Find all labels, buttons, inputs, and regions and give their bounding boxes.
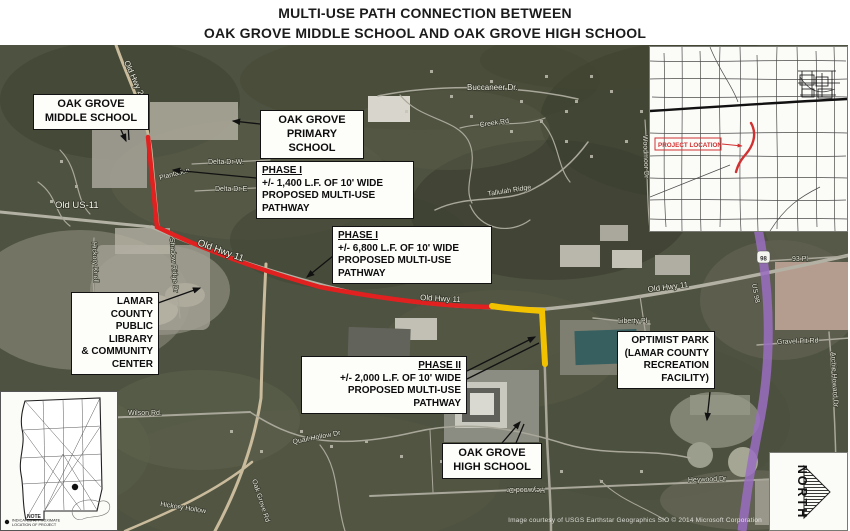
street-label: Delta Dr E — [215, 186, 248, 193]
callout-text: PUBLIC LIBRARY — [77, 321, 153, 346]
title-block: MULTI-USE PATH CONNECTION BETWEEN OAK GR… — [0, 3, 850, 44]
callout-text: OAK GROVE — [266, 114, 358, 128]
callout-text: PROPOSED MULTI-USE PATHWAY — [338, 255, 486, 280]
callout-primary-school: OAK GROVE PRIMARY SCHOOL — [260, 110, 364, 159]
callout-text: +/- 2,000 L.F. OF 10' WIDE — [307, 373, 461, 386]
mississippi-outline — [20, 398, 102, 520]
title-line1: MULTI-USE PATH CONNECTION BETWEEN — [0, 3, 850, 23]
callout-text: OPTIMIST PARK — [623, 335, 709, 348]
street-label: Heywood Dr — [688, 476, 727, 484]
map-sheet: MULTI-USE PATH CONNECTION BETWEEN OAK GR… — [0, 0, 850, 531]
callout-text: +/- 6,800 L.F. OF 10' WIDE — [338, 243, 486, 256]
callout-optimist-park: OPTIMIST PARK (LAMAR COUNTY RECREATION F… — [617, 331, 715, 389]
callout-text: FACILITY) — [623, 373, 709, 386]
callout-library: LAMAR COUNTY PUBLIC LIBRARY & COMMUNITY … — [71, 292, 159, 375]
callout-text: PROPOSED MULTI-USE PATHWAY — [262, 190, 408, 215]
north-arrow: NORTH — [770, 453, 847, 530]
street-label: Liberty Pl — [618, 318, 648, 325]
callout-text: CENTER — [77, 359, 153, 372]
state-map: NOTE INDICATED APPROXIMATE LOCATION OF P… — [1, 392, 117, 530]
callout-text: OAK GROVE — [448, 447, 536, 461]
callout-text: & COMMUNITY — [77, 346, 153, 359]
callout-text: OAK GROVE — [39, 98, 143, 112]
project-location-label: PROJECT LOCATION — [658, 142, 722, 149]
callout-text: PRIMARY SCHOOL — [266, 128, 358, 156]
project-location-inset: PROJECT LOCATION — [649, 46, 848, 232]
inset-main-highway — [650, 99, 847, 111]
street-label: Delta Dr W. — [208, 159, 244, 166]
project-location-dot — [72, 484, 78, 490]
north-arrow-box: NORTH — [769, 452, 848, 531]
callout-text: RECREATION — [623, 360, 709, 373]
callout-text: PROPOSED MULTI-USE PATHWAY — [307, 385, 461, 410]
north-label: NORTH — [795, 465, 809, 519]
inset-road-grid — [650, 47, 847, 231]
street-label: 93 Pl — [792, 256, 808, 263]
state-map-inset: NOTE INDICATED APPROXIMATE LOCATION OF P… — [0, 391, 118, 531]
inset-project-route — [736, 123, 754, 172]
note-bullet — [5, 520, 9, 524]
callout-text: +/- 1,400 L.F. OF 10' WIDE — [262, 178, 408, 191]
inset-town-grid — [798, 71, 840, 98]
note-line2: LOCATION OF PROJECT — [12, 523, 57, 527]
callout-middle-school: OAK GROVE MIDDLE SCHOOL — [33, 94, 149, 130]
street-label: Buccaneer Dr. — [467, 83, 518, 92]
callout-phase1a: PHASE I +/- 1,400 L.F. OF 10' WIDE PROPO… — [256, 161, 414, 219]
street-label: Heywood Dr — [506, 486, 545, 493]
project-location-inset-map: PROJECT LOCATION — [650, 47, 847, 231]
us98-shield: 98 — [757, 251, 770, 263]
title-line2: OAK GROVE MIDDLE SCHOOL AND OAK GROVE HI… — [0, 23, 850, 43]
phase-heading: PHASE II — [307, 360, 461, 373]
callout-text: (LAMAR COUNTY — [623, 348, 709, 361]
callout-phase2: PHASE II +/- 2,000 L.F. OF 10' WIDE PROP… — [301, 356, 467, 414]
callout-text: HIGH SCHOOL — [448, 461, 536, 475]
us98-shield-number: 98 — [760, 257, 767, 263]
phase-heading: PHASE I — [262, 165, 408, 178]
callout-text: MIDDLE SCHOOL — [39, 112, 143, 126]
project-location-arrow — [722, 144, 742, 146]
street-label: Wilson Rd. — [128, 410, 162, 417]
callout-phase1b: PHASE I +/- 6,800 L.F. OF 10' WIDE PROPO… — [332, 226, 492, 284]
callout-text: LAMAR COUNTY — [77, 296, 153, 321]
note-line1: INDICATED APPROXIMATE — [12, 519, 61, 523]
street-label: Old US-11 — [55, 200, 99, 211]
imagery-attribution: Image courtesy of USGS Earthstar Geograp… — [420, 517, 762, 524]
phase-heading: PHASE I — [338, 230, 486, 243]
callout-high-school: OAK GROVE HIGH SCHOOL — [442, 443, 542, 479]
street-label: Gravel Pit Rd — [777, 338, 819, 346]
